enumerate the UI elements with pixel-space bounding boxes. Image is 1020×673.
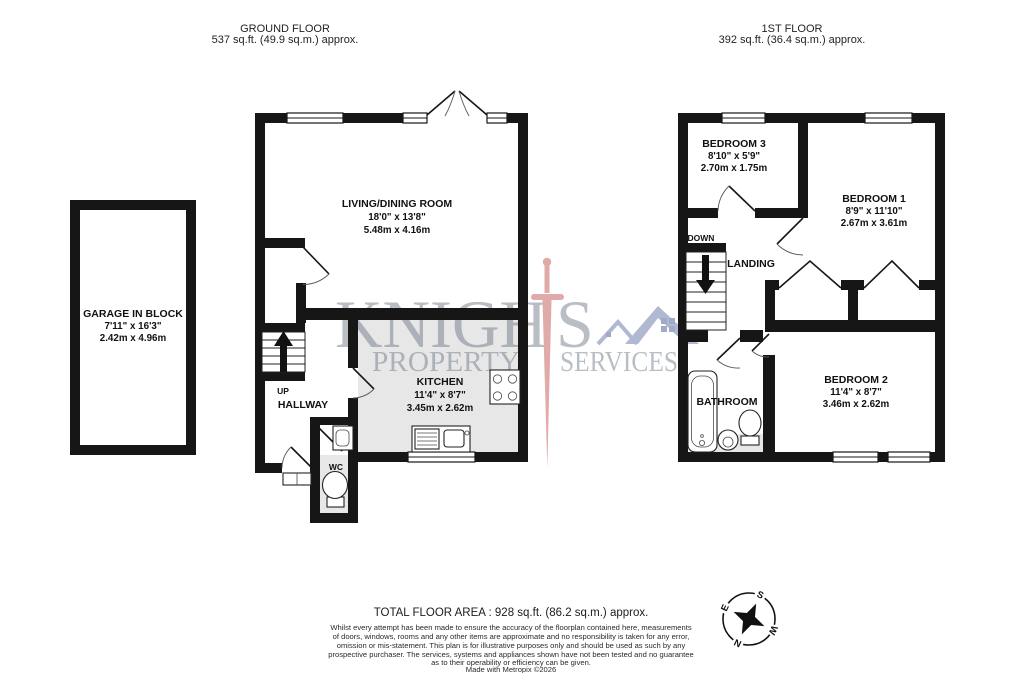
first-floor-plan: BEDROOM 3 8'10" x 5'9" 2.70m x 1.75m BED… — [678, 113, 945, 462]
living-room-dim-metric: 5.48m x 4.16m — [364, 225, 431, 236]
landing-label: LANDING — [727, 258, 775, 270]
ground-floor-area: 537 sq.ft. (49.9 sq.m.) approx. — [212, 34, 359, 46]
stairs-down-label: DOWN — [688, 233, 715, 243]
compass-west-label: W — [766, 624, 780, 637]
living-room-door — [303, 247, 329, 285]
front-door — [282, 447, 312, 485]
garage-dim-imperial: 7'11" x 16'3" — [105, 321, 162, 332]
garage-plan: GARAGE IN BLOCK 7'11" x 16'3" 2.42m x 4.… — [70, 200, 196, 455]
compass-rose: S W N E — [719, 589, 779, 649]
bedroom1-label: BEDROOM 1 — [842, 193, 906, 205]
garage-dim-metric: 2.42m x 4.96m — [100, 333, 167, 344]
bathroom-door — [717, 338, 740, 368]
bedroom3-door — [718, 186, 755, 211]
stairs-up-label: UP — [277, 386, 289, 396]
watermark-tagline-right: SERVICES — [560, 347, 678, 378]
stairs-up — [262, 331, 305, 372]
stairs-down — [686, 252, 726, 330]
garage-label: GARAGE IN BLOCK — [83, 308, 183, 320]
kitchen-dim-imperial: 11'4" x 8'7" — [414, 390, 466, 401]
bedroom3-label: BEDROOM 3 — [702, 138, 766, 150]
living-room-label: LIVING/DINING ROOM — [342, 198, 453, 210]
bathroom-toilet-icon — [739, 410, 761, 445]
first-floor-area: 392 sq.ft. (36.4 sq.m.) approx. — [719, 34, 866, 46]
bedroom2-label: BEDROOM 2 — [824, 374, 888, 386]
living-room-dim-imperial: 18'0" x 13'8" — [368, 212, 426, 223]
bathtub-icon — [688, 371, 717, 452]
bedroom3-dim-metric: 2.70m x 1.75m — [701, 163, 768, 174]
ground-floor-walls — [255, 113, 528, 523]
disclaimer-line-1: Whilst every attempt has been made to en… — [330, 623, 692, 632]
floorplan-page: KNIGH S PROPERTY SERVICES GROUND FLOOR 5… — [0, 0, 1020, 673]
bedroom1-dim-metric: 2.67m x 3.61m — [841, 218, 908, 229]
bathroom-sink-icon — [718, 430, 738, 450]
total-floor-area: TOTAL FLOOR AREA : 928 sq.ft. (86.2 sq.m… — [374, 607, 649, 619]
wc-label: WC — [329, 462, 343, 472]
hob-icon — [490, 370, 520, 404]
footer-text: TOTAL FLOOR AREA : 928 sq.ft. (86.2 sq.m… — [328, 607, 693, 673]
kitchen-sink-icon — [412, 426, 470, 452]
wc-basin-icon — [333, 426, 353, 450]
compass-star-icon — [726, 596, 771, 641]
disclaimer-line-2: of doors, windows, rooms and any other i… — [333, 632, 690, 641]
bedroom2-dim-imperial: 11'4" x 8'7" — [830, 387, 882, 398]
bathroom-label: BATHROOM — [696, 396, 757, 408]
plan-headers: GROUND FLOOR 537 sq.ft. (49.9 sq.m.) app… — [212, 23, 866, 46]
bedroom1-door — [777, 218, 803, 255]
floorplan-canvas: KNIGH S PROPERTY SERVICES GROUND FLOOR 5… — [0, 0, 1020, 673]
bedroom3-dim-imperial: 8'10" x 5'9" — [708, 151, 760, 162]
bedroom1-dim-imperial: 8'9" x 11'10" — [846, 206, 903, 217]
kitchen-label: KITCHEN — [417, 376, 464, 388]
patio-door — [427, 91, 487, 116]
hallway-label: HALLWAY — [278, 399, 328, 411]
bedroom2-dim-metric: 3.46m x 2.62m — [823, 399, 890, 410]
kitchen-dim-metric: 3.45m x 2.62m — [407, 403, 474, 414]
metropix-credit: Made with Metropix ©2026 — [466, 665, 556, 673]
disclaimer-line-3: omission or mis-statement. This plan is … — [337, 641, 686, 650]
